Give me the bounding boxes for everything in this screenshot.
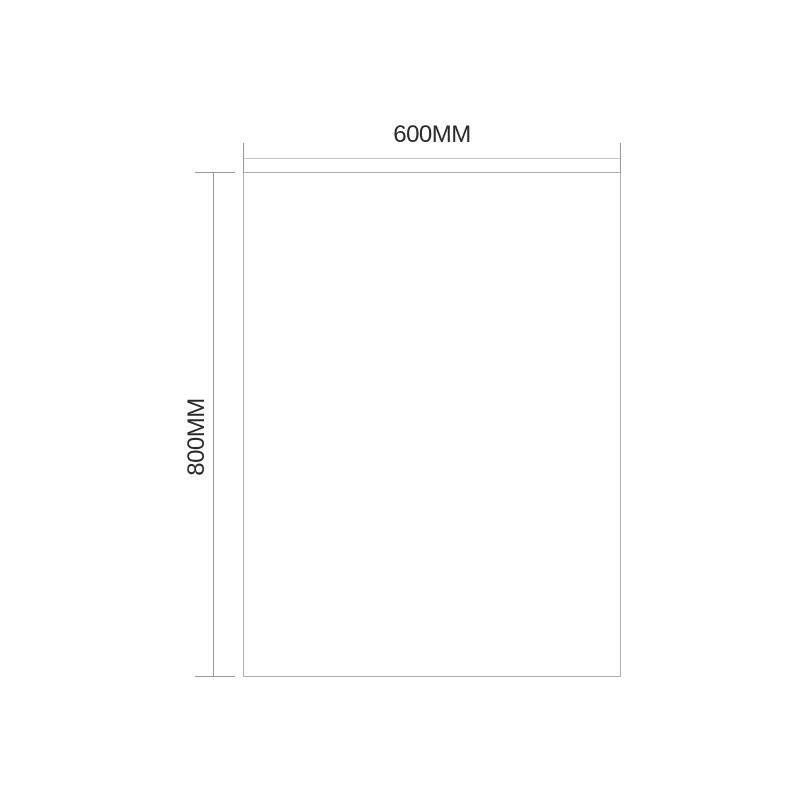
product-rectangle-outline bbox=[243, 172, 621, 677]
height-dimension-line bbox=[213, 172, 214, 677]
height-dimension-tick-bottom bbox=[195, 676, 235, 677]
dimension-diagram: 600MM 800MM bbox=[0, 0, 800, 800]
height-dimension-label: 800MM bbox=[184, 337, 210, 537]
height-dimension-tick-top bbox=[195, 172, 235, 173]
width-dimension-label: 600MM bbox=[243, 122, 621, 148]
width-dimension-line bbox=[243, 158, 621, 159]
